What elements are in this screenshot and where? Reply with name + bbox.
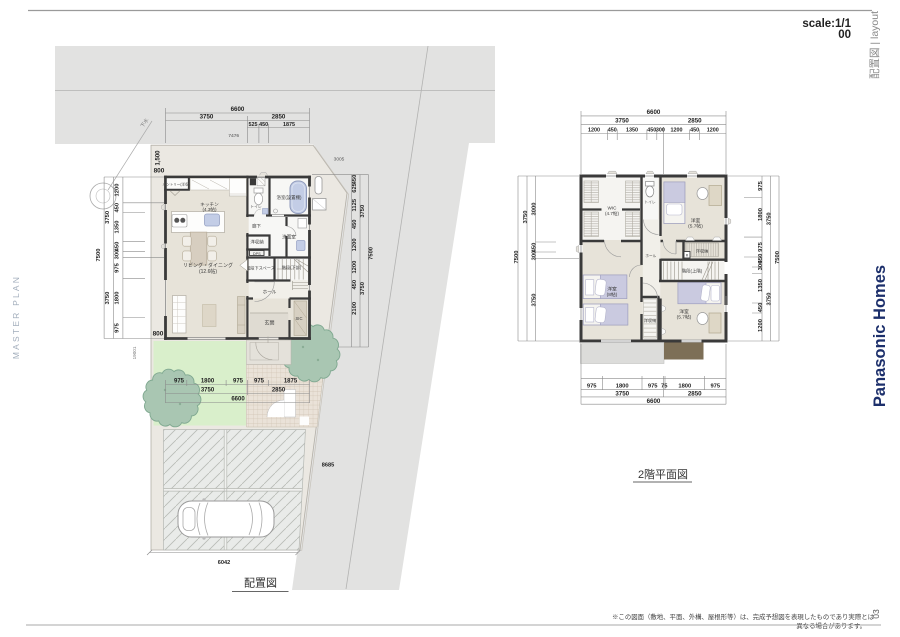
svg-text:1200: 1200 [707, 127, 719, 133]
svg-text:MASTER PLAN: MASTER PLAN [11, 275, 21, 359]
svg-text:975: 975 [115, 262, 121, 272]
svg-text:3750: 3750 [767, 293, 773, 306]
svg-text:配置図 | layout: 配置図 | layout [869, 11, 881, 79]
svg-text:6600: 6600 [647, 398, 661, 405]
svg-text:975: 975 [758, 180, 764, 190]
svg-text:975: 975 [758, 241, 764, 251]
svg-text:※この図面（敷地、平面、外構、屋根形等）は、完成予想図を表現: ※この図面（敷地、平面、外構、屋根形等）は、完成予想図を表現したものであり実際と… [612, 612, 875, 621]
svg-text:(4.7帖): (4.7帖) [605, 210, 620, 217]
svg-text:6600: 6600 [647, 109, 661, 116]
svg-text:6600: 6600 [231, 397, 245, 403]
svg-text:7500: 7500 [514, 251, 520, 264]
svg-text:ホール: ホール [645, 253, 656, 258]
svg-text:DPS: DPS [253, 252, 261, 256]
svg-text:パントリー(洋収納): パントリー(洋収納) [163, 181, 194, 186]
svg-text:1200: 1200 [758, 319, 764, 332]
svg-text:3005: 3005 [334, 157, 345, 163]
svg-text:975: 975 [174, 379, 185, 385]
svg-text:1200: 1200 [588, 127, 600, 133]
svg-text:(12.6帖): (12.6帖) [199, 268, 217, 275]
svg-text:3750: 3750 [360, 282, 366, 295]
svg-text:2階平面図: 2階平面図 [638, 467, 688, 481]
svg-text:450: 450 [608, 127, 617, 133]
svg-text:975: 975 [115, 322, 121, 332]
svg-text:975: 975 [233, 379, 244, 385]
svg-text:6042: 6042 [218, 560, 230, 566]
svg-text:洋室: 洋室 [607, 286, 617, 293]
svg-text:3750: 3750 [615, 391, 629, 398]
svg-text:450: 450 [352, 280, 358, 290]
svg-text:3750: 3750 [523, 211, 529, 224]
svg-text:1200: 1200 [671, 127, 683, 133]
svg-text:洋室: 洋室 [691, 217, 701, 224]
svg-text:洋収納: 洋収納 [250, 239, 264, 246]
svg-text:800: 800 [154, 168, 165, 175]
svg-text:トイレ: トイレ [644, 200, 656, 205]
svg-text:玄関: 玄関 [264, 320, 274, 327]
svg-text:1350: 1350 [626, 127, 638, 133]
svg-text:トイレ: トイレ [250, 204, 262, 209]
svg-text:階段(下部): 階段(下部) [282, 264, 302, 271]
svg-text:3750: 3750 [200, 114, 214, 121]
svg-text:1800: 1800 [201, 379, 215, 385]
svg-text:00: 00 [838, 29, 851, 41]
svg-text:廊下: 廊下 [252, 222, 261, 229]
svg-text:2850: 2850 [688, 118, 702, 125]
svg-text:(8帖): (8帖) [607, 291, 618, 298]
svg-text:2850: 2850 [688, 391, 702, 398]
svg-text:7500: 7500 [96, 249, 102, 262]
svg-text:1350: 1350 [758, 279, 764, 292]
svg-text:450: 450 [115, 203, 121, 213]
svg-text:2850: 2850 [272, 114, 286, 121]
svg-text:2850: 2850 [272, 388, 286, 394]
svg-text:1800: 1800 [115, 292, 121, 305]
svg-text:1125: 1125 [352, 198, 358, 211]
svg-text:3750: 3750 [201, 388, 215, 394]
svg-text:1800: 1800 [678, 383, 691, 389]
svg-text:1875: 1875 [284, 379, 298, 385]
svg-text:300: 300 [758, 261, 764, 271]
svg-text:975: 975 [648, 383, 658, 389]
svg-text:450: 450 [259, 122, 268, 128]
svg-text:19001: 19001 [132, 346, 137, 359]
svg-text:625: 625 [352, 182, 358, 192]
svg-text:リビング・ダイニング: リビング・ダイニング [183, 262, 233, 269]
svg-text:3750: 3750 [105, 211, 111, 224]
svg-text:525: 525 [249, 122, 258, 128]
svg-text:300: 300 [656, 127, 665, 133]
svg-text:75: 75 [661, 383, 668, 389]
svg-text:Panasonic Homes: Panasonic Homes [871, 265, 889, 407]
svg-text:浴室(設置棚): 浴室(設置棚) [277, 194, 302, 201]
svg-text:階段下スペース: 階段下スペース [246, 265, 275, 272]
svg-text:階段(上階): 階段(上階) [682, 268, 703, 275]
svg-text:300: 300 [115, 250, 121, 260]
svg-text:6600: 6600 [231, 106, 245, 113]
svg-text:1,500: 1,500 [156, 150, 162, 166]
svg-text:1800: 1800 [616, 383, 629, 389]
svg-text:洋室: 洋室 [679, 308, 689, 315]
svg-text:洗面室: 洗面室 [282, 234, 296, 241]
svg-text:2100: 2100 [352, 302, 358, 315]
svg-text:3750: 3750 [615, 118, 629, 125]
svg-text:洋収納: 洋収納 [644, 317, 657, 324]
svg-text:7500: 7500 [775, 251, 781, 264]
svg-text:SIC: SIC [296, 316, 303, 321]
svg-text:(5.7帖): (5.7帖) [688, 223, 703, 230]
svg-text:1875: 1875 [283, 122, 295, 128]
svg-text:1200: 1200 [352, 261, 358, 274]
svg-text:3750: 3750 [105, 292, 111, 305]
svg-text:1350: 1350 [115, 221, 121, 234]
svg-text:3000: 3000 [532, 203, 538, 216]
svg-text:800: 800 [153, 331, 164, 338]
svg-text:洋収納: 洋収納 [696, 248, 709, 255]
svg-text:975: 975 [710, 383, 720, 389]
svg-text:975: 975 [254, 379, 265, 385]
svg-text:450: 450 [352, 219, 358, 229]
svg-text:配置図: 配置図 [244, 577, 277, 590]
svg-text:450: 450 [690, 127, 699, 133]
svg-text:7476: 7476 [228, 133, 239, 139]
svg-text:450: 450 [352, 175, 358, 185]
svg-text:3750: 3750 [532, 294, 538, 307]
svg-text:450: 450 [758, 303, 764, 313]
svg-text:(4.3帖): (4.3帖) [202, 206, 217, 213]
svg-text:3750: 3750 [767, 212, 773, 225]
svg-text:1200: 1200 [115, 184, 121, 197]
svg-text:300: 300 [532, 251, 538, 261]
svg-text:1800: 1800 [758, 208, 764, 221]
svg-text:975: 975 [587, 383, 597, 389]
svg-text:3750: 3750 [360, 205, 366, 218]
svg-text:(5.7帖): (5.7帖) [677, 314, 692, 321]
svg-text:7500: 7500 [369, 247, 375, 260]
svg-text:WIC: WIC [608, 206, 618, 211]
svg-text:8685: 8685 [322, 463, 334, 469]
svg-text:1200: 1200 [352, 238, 358, 251]
